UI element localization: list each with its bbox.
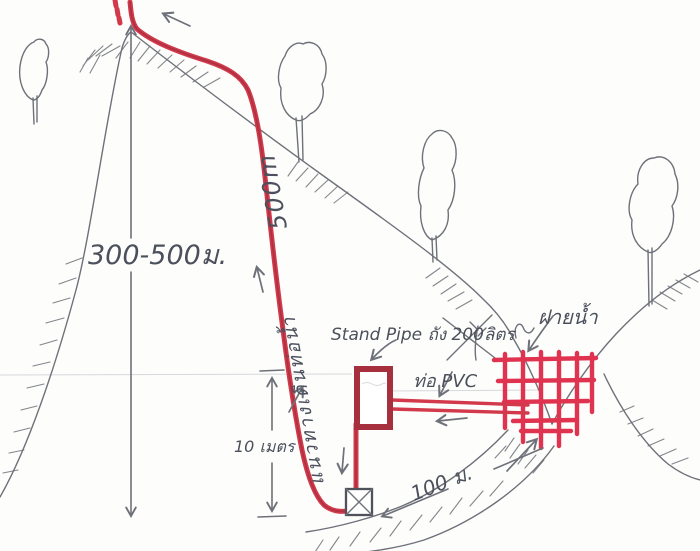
flow-arrow-top-left	[164, 14, 190, 26]
elevation-label: 300-500ม.	[88, 240, 227, 271]
pipe-route-label: แนวทางเดินท่อน้ำ	[273, 314, 328, 488]
grass-hatch-mid-slope	[288, 162, 348, 203]
distance-label: 100 ม.	[407, 460, 475, 505]
stream-bank-right	[604, 374, 700, 480]
stream-bank-upper	[306, 430, 508, 532]
valve-box	[346, 489, 372, 515]
mountain-right-slope	[131, 32, 552, 424]
pvc-pipe-label: ท่อ PVC	[413, 371, 478, 392]
weir-grid	[494, 352, 596, 448]
tree-valley-left	[418, 131, 456, 262]
pencil-squiggle	[515, 324, 534, 338]
drop-height-label: 10 เมตร	[234, 437, 297, 456]
tree-valley-right	[629, 157, 678, 306]
pipe-route-length-label: 500m	[252, 151, 293, 232]
hand-drawn-water-system-sketch: 300-500ม. แนวทางเดินท่อน้ำ 500m Stand Pi…	[0, 0, 700, 551]
tree-mid-slope	[278, 42, 326, 162]
stand-pipe-label: Stand Pipe ถัง 200ลิตร	[331, 325, 516, 345]
flow-arrow-up-mid	[257, 268, 263, 292]
pipe-continuation-dashes	[115, 0, 120, 23]
grass-hatch-peak	[80, 42, 220, 87]
stand-pipe-assembly	[356, 369, 390, 492]
grass-hatch-left-slope	[3, 258, 82, 473]
tree-left-slope	[20, 39, 49, 124]
stand-pipe-tank	[357, 369, 390, 427]
grass-hatch-valley-right	[652, 274, 698, 309]
weir-label: ฝายน้ำ	[538, 302, 598, 329]
flow-arrow-down-tank	[342, 448, 344, 472]
sketch-canvas: 300-500ม. แนวทางเดินท่อน้ำ 500m Stand Pi…	[0, 0, 700, 551]
grass-hatch-right-lower-bank	[620, 406, 688, 464]
grass-hatch-valley-left	[426, 268, 472, 309]
flow-arrow-left-pvc	[438, 418, 467, 421]
